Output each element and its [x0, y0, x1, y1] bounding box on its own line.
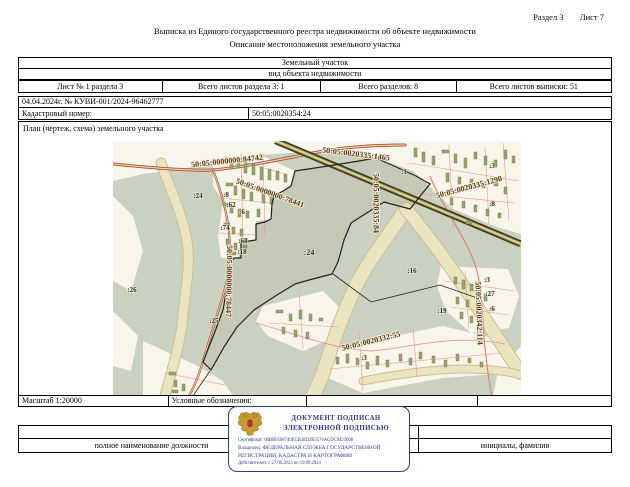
date-number: 04.04.2024г. № КУВИ-001/2024-96462777	[19, 97, 611, 108]
sheet-number: Лист 7	[580, 12, 604, 22]
sections-total-cell: Всего разделов: 8	[321, 81, 457, 92]
sheets-summary-table: Лист № 1 раздела 3 Всего листов раздела …	[18, 80, 612, 93]
stamp-title-1: ДОКУМЕНТ ПОДПИСАН	[267, 415, 405, 422]
map-label: :62	[226, 201, 236, 209]
map-label: :3	[484, 276, 490, 284]
cadastral-table: 04.04.2024г. № КУВИ-001/2024-96462777 Ка…	[18, 96, 612, 120]
stamp-owner-1: Владелец: ФЕДЕРАЛЬНАЯ СЛУЖБА ГОСУДАРСТВЕ…	[238, 445, 381, 451]
map-label: :16	[407, 267, 417, 275]
name-caption: инициалы, фамилия	[419, 439, 611, 452]
document-subtitle: Описание местоположения земельного участ…	[0, 39, 630, 49]
plan-caption: План (чертеж, схема) земельного участка	[23, 124, 164, 134]
map-label: :24	[304, 248, 315, 257]
page-header-right: Раздел 3 Лист 7	[533, 12, 604, 22]
map-label: 50:05:0000000:78447	[224, 245, 234, 317]
map-label: :18	[237, 248, 247, 256]
stamp-certificate: Сертификат: 00BB0568740ECB38D2B3576ACDC9…	[238, 438, 353, 443]
digital-signature-stamp: ДОКУМЕНТ ПОДПИСАН ЭЛЕКТРОННОЙ ПОДПИСЬЮ С…	[228, 406, 410, 472]
map-label: 50:05:0020335:84	[372, 173, 381, 233]
coat-of-arms-icon	[237, 411, 263, 439]
stamp-title-2: ЭЛЕКТРОННОЙ ПОДПИСЬЮ	[267, 425, 405, 432]
section-sheets-cell: Всего листов раздела 3: 1	[163, 81, 321, 92]
map-label: :6	[239, 208, 245, 216]
sheet-cell: Лист № 1 раздела 3	[19, 81, 163, 92]
map-label: :8	[223, 191, 229, 199]
map-label: :25	[209, 317, 219, 325]
cadastral-label: Кадастровый номер:	[19, 108, 249, 119]
map-label: :3	[489, 162, 495, 170]
map-label: :6	[489, 305, 495, 313]
legend-empty-cell-2	[478, 396, 611, 406]
map-label: :8	[489, 200, 495, 208]
map-label: :1	[401, 168, 407, 176]
map-label: :27	[485, 290, 495, 298]
section-number: Раздел 3	[533, 12, 563, 22]
plan-box: План (чертеж, схема) земельного участка	[18, 121, 612, 396]
map-label: :24	[193, 192, 203, 200]
signature-name-field	[419, 426, 611, 438]
map-label: :26	[127, 286, 137, 294]
legend-empty-cell	[307, 396, 478, 406]
map-label: :3	[361, 354, 367, 362]
map-label: :68	[238, 237, 248, 245]
object-type-value: Земельный участок	[19, 58, 611, 69]
scale-label: Масштаб 1:20000	[19, 396, 169, 406]
document-page: { "page": { "section": "Раздел 3", "shee…	[0, 0, 630, 487]
cadastral-number: 50:05:0020354:24	[249, 108, 611, 119]
document-title: Выписка из Единого государственного реес…	[0, 26, 630, 36]
legend-label: Условные обозначения:	[169, 396, 308, 406]
stamp-owner-2: РЕГИСТРАЦИИ, КАДАСТРА И КАРТОГРАФИИ	[238, 453, 352, 459]
stamp-validity: Действителен: с 27.06.2023 по 19.09.2024	[238, 461, 321, 466]
plan-map: 50:05:0000000:84742 50:05:0020335:1465 5…	[113, 141, 521, 396]
map-label: :74	[220, 224, 230, 232]
map-label: :19	[437, 307, 447, 315]
object-type-caption: вид объекта недвижимости	[19, 69, 611, 79]
extract-sheets-cell: Всего листов выписки: 51	[457, 81, 611, 92]
object-type-table: Земельный участок вид объекта недвижимос…	[18, 57, 612, 80]
